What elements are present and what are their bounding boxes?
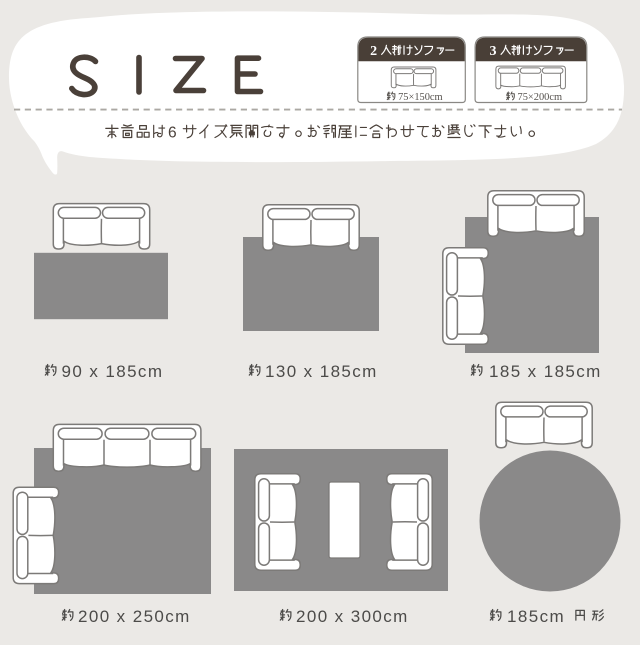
svg-text:90 x 185cm: 90 x 185cm [62,362,164,381]
svg-text:185 x 185cm: 185 x 185cm [489,362,602,381]
svg-text:200 x 300cm: 200 x 300cm [296,607,409,626]
svg-text:185cm: 185cm [507,607,565,626]
svg-text:3: 3 [490,44,497,59]
svg-text:200 x 250cm: 200 x 250cm [78,607,191,626]
svg-text:75×150cm: 75×150cm [398,92,443,103]
svg-text:2: 2 [370,44,377,59]
svg-text:75×200cm: 75×200cm [518,92,563,103]
svg-text:130 x 185cm: 130 x 185cm [265,362,378,381]
svg-text:6: 6 [168,124,177,141]
